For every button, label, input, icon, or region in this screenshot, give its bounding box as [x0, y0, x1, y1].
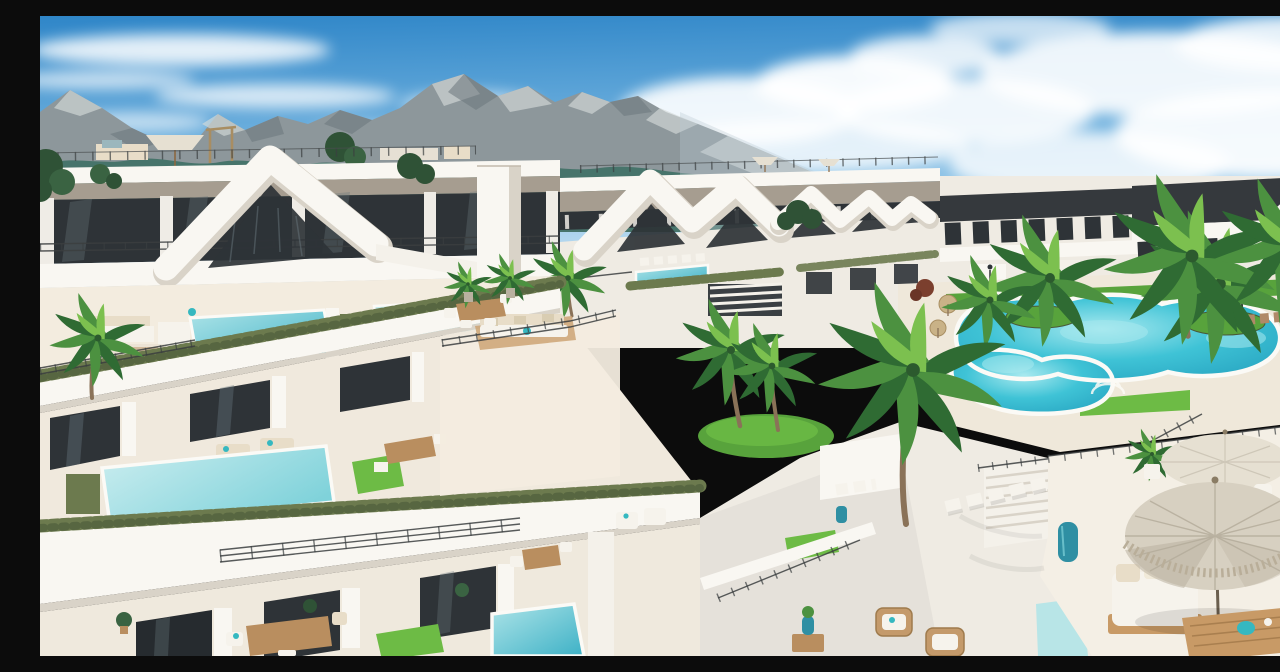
hedge-box [66, 474, 100, 514]
teal-planter [836, 506, 847, 523]
teal-ceramic [1237, 621, 1255, 635]
teal-cushion [223, 446, 229, 452]
residential-complex-render [40, 16, 1280, 656]
tall-teal-vase [1058, 522, 1078, 562]
partition-wall [588, 532, 614, 656]
sun-loungers [1246, 316, 1280, 320]
render-canvas [40, 16, 1280, 656]
